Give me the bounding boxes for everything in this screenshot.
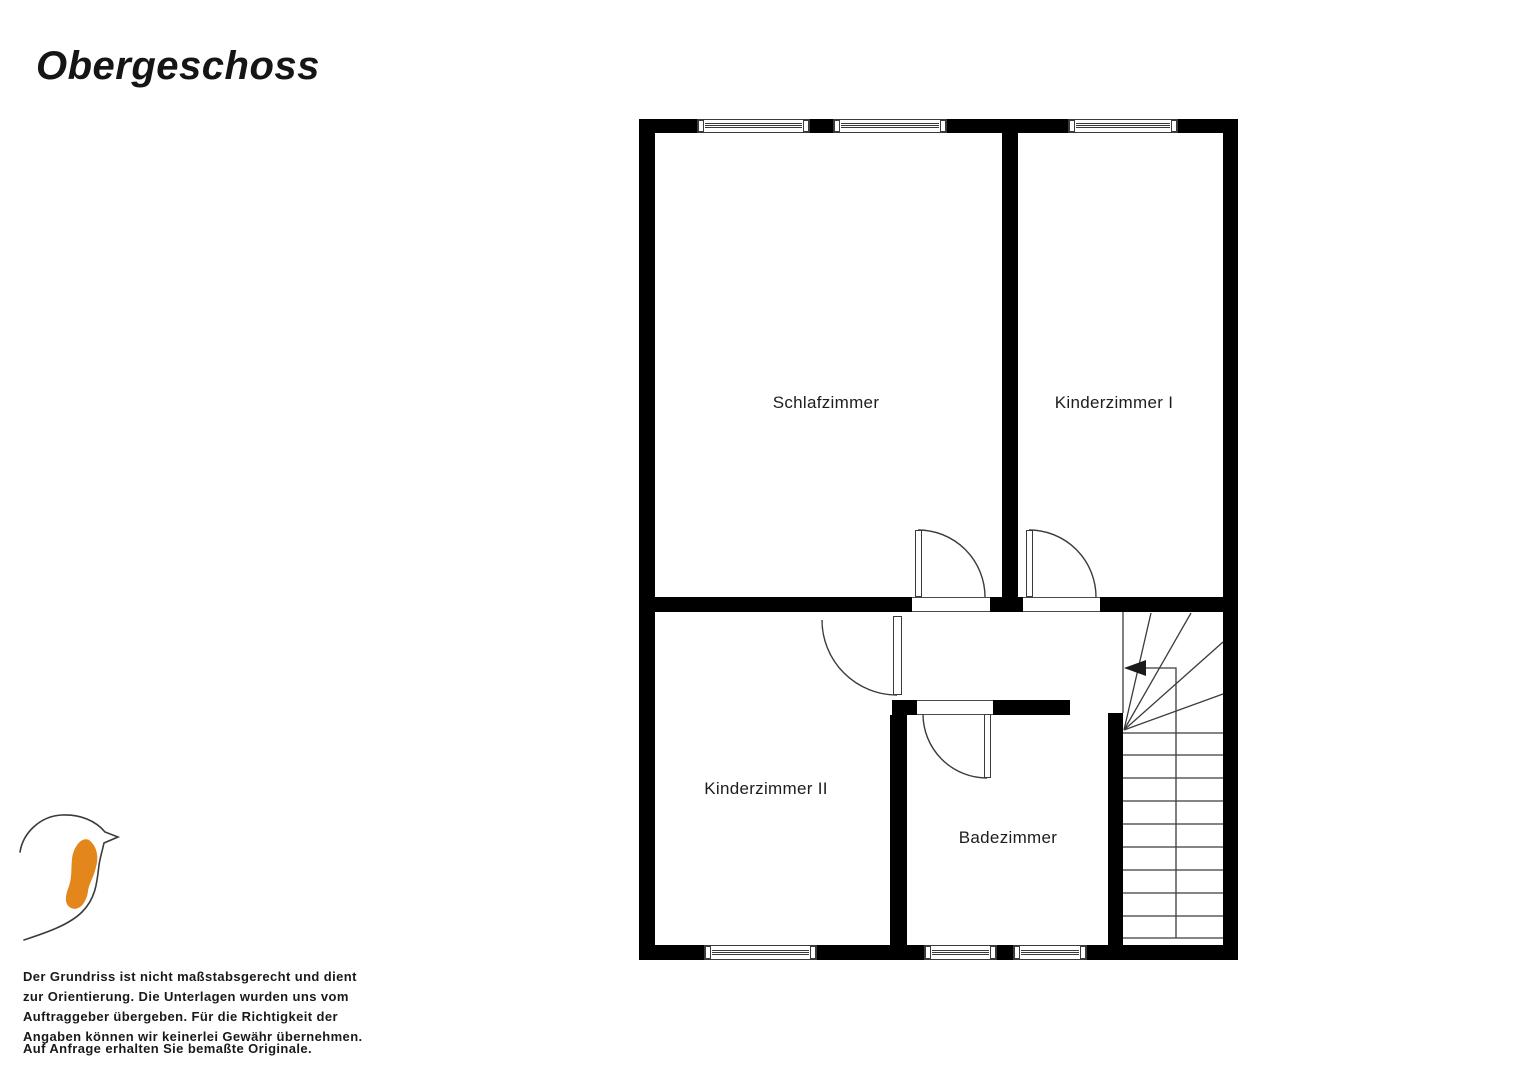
- door-leaf-kinderzimmer2: [893, 616, 902, 695]
- window-jamb: [810, 946, 816, 959]
- wall-middle-east: [1100, 597, 1238, 612]
- wall-hall-bath-west: [892, 700, 917, 715]
- stair-walk-line: [1144, 668, 1176, 938]
- wall-right: [1223, 119, 1238, 960]
- window: [704, 945, 817, 960]
- stair-winder-fan: [1124, 613, 1223, 730]
- door-swing-arc: [918, 530, 985, 597]
- room-label-kinderzimmer-1: Kinderzimmer I: [1055, 393, 1174, 413]
- window: [833, 119, 947, 133]
- wall-bath-divider: [890, 715, 907, 945]
- wall-middle-west: [639, 597, 912, 612]
- wall-bedroom-divider: [1002, 133, 1018, 597]
- window-pane: [841, 123, 939, 128]
- window-jamb: [1080, 946, 1086, 959]
- disclaimer-paragraph: Der Grundriss ist nicht maßstabsgerecht …: [23, 967, 363, 1047]
- robin-outline: [20, 815, 118, 940]
- robin-bird-icon: [18, 800, 123, 950]
- room-label-badezimmer: Badezimmer: [959, 828, 1057, 848]
- window-jamb: [834, 120, 840, 132]
- window: [1013, 945, 1087, 960]
- wall-middle-between-doors: [990, 597, 1023, 612]
- window-jamb: [940, 120, 946, 132]
- wall-bottom-right: [1087, 945, 1238, 960]
- window-jamb: [1014, 946, 1020, 959]
- disclaimer-note: Auf Anfrage erhalten Sie bemaßte Origina…: [23, 1039, 312, 1059]
- window-jamb: [698, 120, 704, 132]
- door-leaf-badezimmer: [984, 714, 991, 778]
- wall-bottom-left-corner: [639, 945, 704, 960]
- door-opening-kinderzimmer1: [1023, 597, 1100, 612]
- door-opening-schlafzimmer: [912, 597, 990, 612]
- window-jamb: [705, 946, 711, 959]
- room-label-schlafzimmer: Schlafzimmer: [773, 393, 880, 413]
- door-opening-badezimmer: [917, 700, 993, 715]
- robin-breast-patch: [66, 839, 97, 909]
- window-jamb: [803, 120, 809, 132]
- wall-top-pier: [810, 119, 833, 133]
- window-pane: [1076, 123, 1170, 128]
- page-title: Obergeschoss: [36, 44, 320, 89]
- staircase: [1123, 612, 1223, 938]
- window: [924, 945, 997, 960]
- window-pane: [705, 123, 802, 128]
- wall-left: [639, 119, 655, 960]
- wall-bottom-pier: [997, 945, 1013, 960]
- window-jamb: [1069, 120, 1075, 132]
- window-jamb: [990, 946, 996, 959]
- door-leaf-kinderzimmer1: [1026, 530, 1033, 597]
- window: [1068, 119, 1178, 133]
- window-jamb: [1171, 120, 1177, 132]
- door-swing-arc: [1029, 530, 1096, 597]
- stair-treads: [1123, 733, 1223, 938]
- company-logo: Rotkehlchen® Immobilien: [18, 800, 378, 950]
- wall-bottom-center: [817, 945, 924, 960]
- wall-stair-left: [1108, 713, 1123, 945]
- window-pane: [712, 950, 809, 955]
- window-pane: [932, 950, 989, 955]
- wall-hall-bath-east: [993, 700, 1070, 715]
- window-pane: [1021, 950, 1079, 955]
- window-jamb: [925, 946, 931, 959]
- floor-plan-page: Obergeschoss: [0, 0, 1527, 1080]
- wall-top-center: [947, 119, 1068, 133]
- stair-direction-arrow: [1124, 660, 1146, 676]
- door-swing-arc: [923, 714, 987, 778]
- door-swing-arc: [822, 620, 897, 695]
- room-label-kinderzimmer-2: Kinderzimmer II: [704, 779, 828, 799]
- door-leaf-schlafzimmer: [915, 530, 922, 597]
- window: [697, 119, 810, 133]
